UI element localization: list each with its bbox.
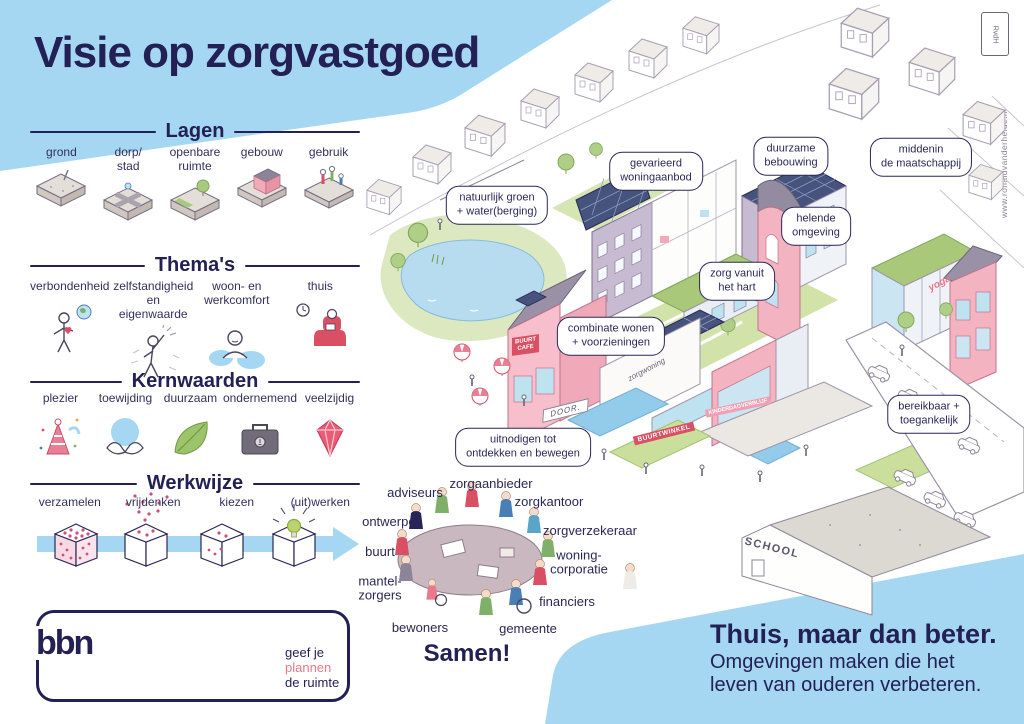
terrace-umbrella [472, 388, 488, 406]
wheelchair-wheel [517, 599, 531, 613]
openbare-ruimte-icon [167, 178, 223, 224]
divider-line [30, 381, 122, 383]
samen-figure [395, 530, 409, 556]
themas-row: verbondenheid zelfstandigheid en eigenwa… [28, 280, 362, 383]
buurt-cafe-sign: BUURT CAFE [512, 334, 539, 356]
gebruik-icon [301, 164, 357, 210]
city-label-middenin-de-maatschappij: middenin de maatschappij [870, 138, 972, 177]
lagen-row: grond dorp/ stad openbare ruimte [28, 146, 362, 224]
party-hat-icon [35, 410, 85, 462]
building-yoga [944, 246, 1002, 392]
divider-line [30, 131, 156, 133]
person-figure [804, 445, 808, 456]
grond-icon [33, 164, 89, 210]
bbn-tagline: geef je plannen de ruimte [285, 645, 339, 690]
item-label: toewijding [99, 392, 152, 406]
item-label: thuis [308, 280, 333, 294]
kernwaarde-ondernemend: ondernemend [223, 392, 297, 462]
background-house [963, 102, 1005, 145]
bbn-logo: bbn [30, 626, 98, 660]
stakeholder-financiers: financiers [539, 595, 595, 609]
person-figure [644, 463, 648, 474]
section-lagen-header: Lagen [30, 120, 360, 143]
tagline-line3: de ruimte [285, 675, 339, 690]
lagen-item-openbare-ruimte: openbare ruimte [162, 146, 229, 224]
werkwijze-labels-row: verzamelen vrijdenken kiezen (uit)werken [28, 496, 362, 510]
background-house [841, 8, 889, 57]
tree [590, 143, 603, 159]
section-title: Thema's [155, 254, 235, 277]
divider-line [245, 265, 360, 267]
footer-subline: Omgevingen maken die het leven van ouder… [710, 651, 997, 696]
background-house [413, 145, 451, 184]
lagen-item-gebruik: gebruik [295, 146, 362, 224]
person-figure [758, 471, 762, 482]
cheering-figure [623, 564, 637, 590]
lagen-item-grond: grond [28, 146, 95, 224]
city-label-bereikbaar: bereikbaar + toegankelijk [887, 395, 970, 434]
gebouw-icon [234, 164, 290, 210]
item-label: duurzaam [164, 392, 217, 406]
leaf-icon [165, 410, 215, 462]
kernwaarde-plezier: plezier [28, 392, 93, 462]
stakeholder-mantelzorgers: mantel- zorgers [358, 575, 401, 604]
briefcase-icon [235, 410, 285, 462]
caring-hands-icon [100, 410, 150, 462]
stakeholder-buurt: buurt [365, 545, 395, 559]
city-label-duurzame-bebouwing: duurzame bebouwing [753, 137, 828, 176]
city-label-combinatie-wonen: combinate wonen + voorzieningen [557, 317, 665, 356]
item-label: grond [46, 146, 77, 160]
stakeholder-gemeente: gemeente [499, 622, 557, 636]
section-themas-header: Thema's [30, 254, 360, 277]
background-house [521, 89, 559, 128]
background-house [629, 39, 667, 78]
kernwaarden-row: plezier toewijding duurzaam [28, 392, 362, 462]
kernwaarde-duurzaam: duurzaam [158, 392, 223, 462]
item-label: veelzijdig [305, 392, 354, 406]
item-label: verbondenheid [30, 280, 109, 294]
stakeholder-bewoners: bewoners [392, 621, 448, 635]
step-label-vrijdenken: vrijdenken [126, 496, 181, 510]
item-label: ondernemend [223, 392, 297, 406]
background-house [575, 63, 613, 102]
step-label-uitwerken: (uit)werken [291, 496, 350, 510]
kernwaarde-veelzijdig: veelzijdig [297, 392, 362, 462]
thema-wooncomfort: woon- en werkcomfort [195, 280, 279, 383]
stakeholder-zorgkantoor: zorgkantoor [515, 495, 584, 509]
kernwaarde-toewijding: toewijding [93, 392, 158, 462]
step-label-verzamelen: verzamelen [39, 496, 101, 510]
tagline-line2: plannen [285, 660, 339, 675]
lagen-item-dorp-stad: dorp/ stad [95, 146, 162, 224]
section-kernwaarden-header: Kernwaarden [30, 370, 360, 393]
thema-thuis: thuis [279, 280, 363, 383]
step-label-kiezen: kiezen [219, 496, 254, 510]
diamond-icon [305, 410, 355, 462]
background-house [465, 115, 505, 156]
section-title: Kernwaarden [132, 370, 259, 393]
background-house [969, 165, 1003, 200]
stakeholder-woningcorporatie: woning- corporatie [550, 549, 608, 578]
divider-line [253, 483, 360, 485]
item-label: plezier [43, 392, 78, 406]
divider-line [234, 131, 360, 133]
person-figure [700, 465, 704, 476]
stakeholder-zorgverzekeraar: zorgverzekeraar [543, 524, 637, 538]
box-kiezen-icon [201, 524, 243, 566]
pond [401, 240, 544, 321]
tagline-line1: geef je [285, 645, 339, 660]
terrace-umbrella [454, 344, 470, 362]
person-figure [470, 375, 474, 386]
thema-verbondenheid: verbondenheid [28, 280, 112, 383]
city-label-uitnodigen: uitnodigen tot ontdekken en bewegen [455, 428, 591, 467]
stakeholder-ontwerper: ontwerper [362, 515, 420, 529]
lagen-item-gebouw: gebouw [228, 146, 295, 224]
verbondenheid-icon [40, 298, 100, 356]
section-title: Lagen [166, 120, 225, 143]
box-uitwerken-icon [273, 504, 315, 566]
tree [558, 154, 574, 174]
item-label: gebouw [241, 146, 283, 160]
city-label-helende-omgeving: helende omgeving [781, 207, 851, 246]
background-house [367, 180, 401, 215]
thuis-icon [290, 298, 350, 356]
samen-figure [527, 508, 541, 534]
divider-line [30, 265, 145, 267]
city-label-gevarieerd-woningaanbod: gevarieerd woningaanbod [609, 152, 703, 191]
wheelchair-wheel [436, 595, 447, 606]
city-label-natuurlijk-groen: natuurlijk groen + water(berging) [446, 186, 548, 225]
item-label: openbare ruimte [170, 146, 221, 174]
footer-headline: Thuis, maar dan beter. [710, 620, 997, 648]
divider-line [268, 381, 360, 383]
stakeholder-zorgaanbieder: zorgaanbieder [449, 477, 532, 491]
thema-zelfstandigheid: zelfstandigheid en eigenwaarde [112, 280, 196, 383]
dorp-stad-icon [100, 178, 156, 224]
city-label-zorg-vanuit-het-hart: zorg vanuit het hart [699, 262, 775, 301]
footer-tagline: Thuis, maar dan beter. Omgevingen maken … [710, 620, 997, 696]
background-house [829, 69, 878, 120]
stakeholder-adviseurs: adviseurs [387, 486, 443, 500]
item-label: gebruik [309, 146, 348, 160]
samen-figure [499, 492, 513, 518]
poster-root: Visie op zorgvastgoed Lagen grond dorp/ … [0, 0, 1024, 724]
item-label: woon- en werkcomfort [204, 280, 269, 308]
samen-title: Samen! [424, 640, 511, 668]
item-label: dorp/ stad [115, 146, 142, 174]
background-house [909, 48, 955, 95]
item-label: zelfstandigheid en eigenwaarde [112, 280, 196, 321]
divider-line [30, 483, 137, 485]
wooncomfort-icon [207, 312, 267, 370]
person-figure [602, 449, 606, 460]
box-verzamelen-icon [55, 524, 97, 566]
